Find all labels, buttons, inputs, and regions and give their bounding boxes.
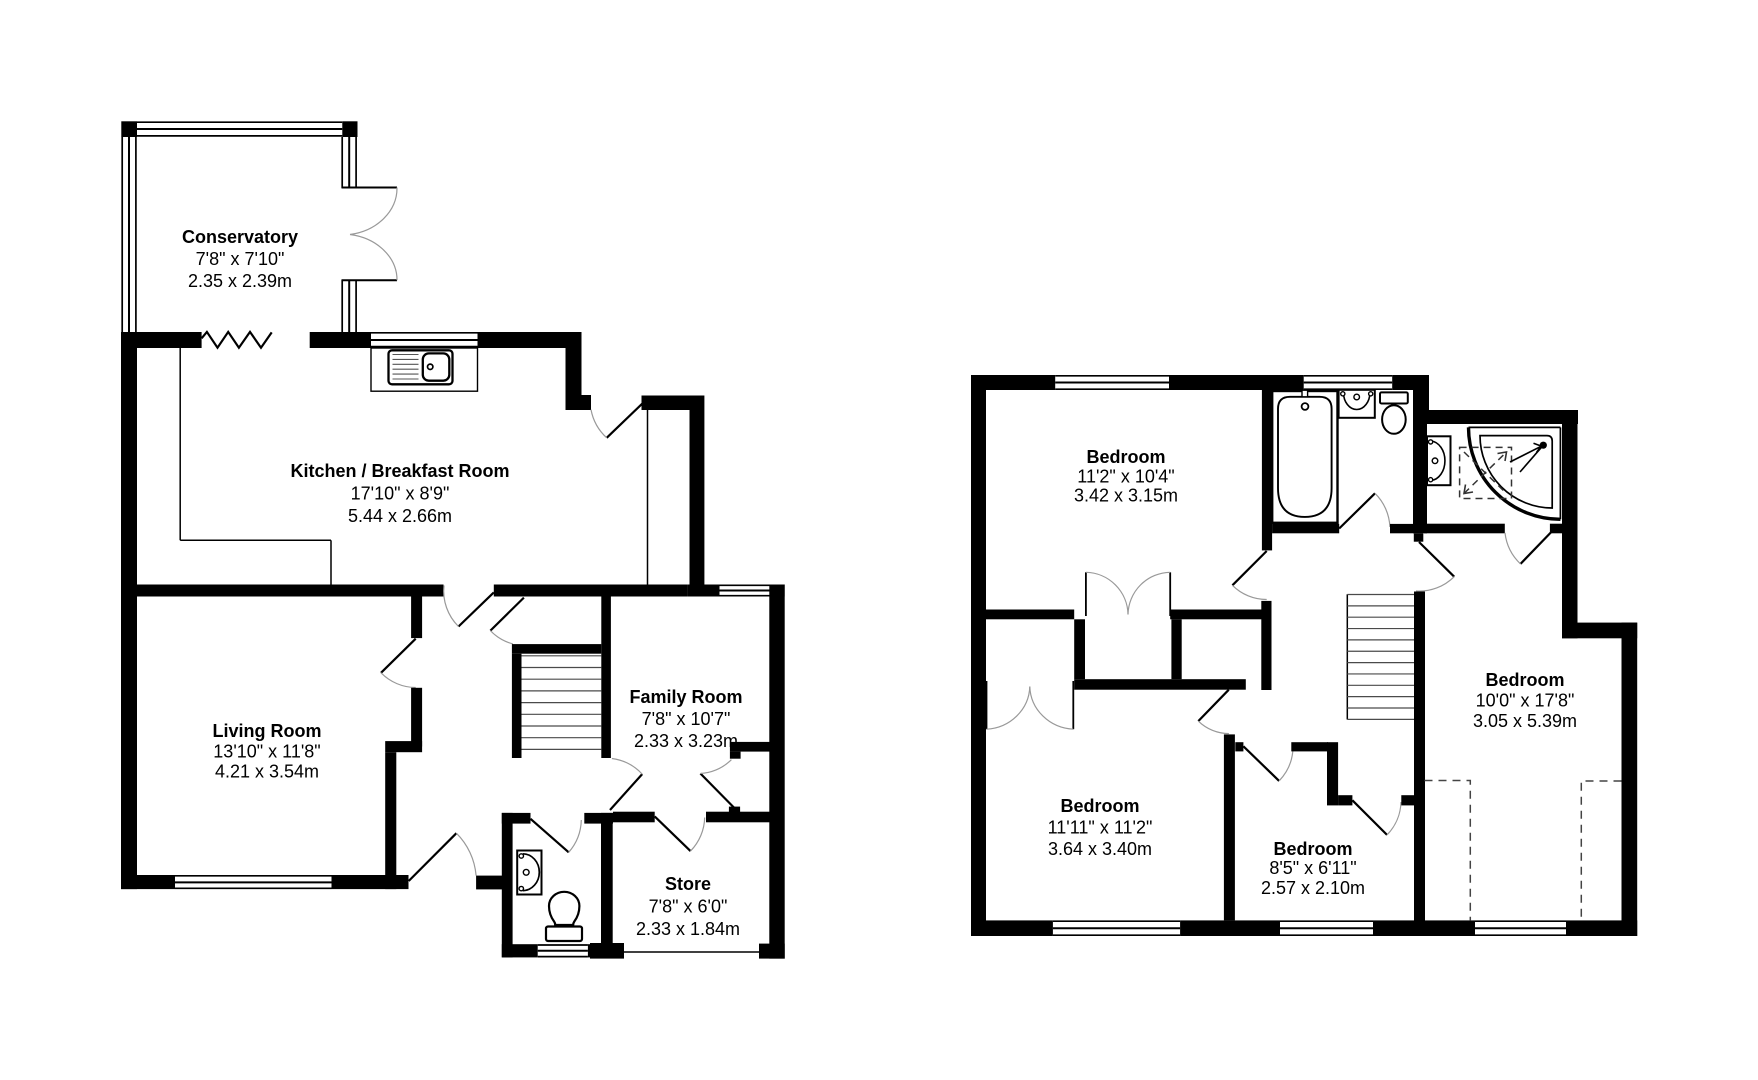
svg-text:2.33 x 3.23m: 2.33 x 3.23m — [634, 731, 738, 751]
svg-text:2.57 x 2.10m: 2.57 x 2.10m — [1261, 878, 1365, 898]
svg-text:Family Room: Family Room — [629, 687, 742, 707]
svg-text:13'10" x 11'8": 13'10" x 11'8" — [213, 742, 320, 762]
svg-text:7'8" x 6'0": 7'8" x 6'0" — [649, 897, 728, 917]
svg-text:Bedroom: Bedroom — [1485, 670, 1564, 690]
svg-text:3.64 x 3.40m: 3.64 x 3.40m — [1048, 839, 1152, 859]
svg-text:3.05 x 5.39m: 3.05 x 5.39m — [1473, 711, 1577, 731]
svg-text:Conservatory: Conservatory — [182, 227, 298, 247]
svg-text:11'2" x 10'4": 11'2" x 10'4" — [1077, 467, 1174, 487]
svg-text:Store: Store — [665, 874, 711, 894]
svg-text:Living Room: Living Room — [213, 721, 322, 741]
svg-text:2.33 x 1.84m: 2.33 x 1.84m — [636, 919, 740, 939]
svg-text:Bedroom: Bedroom — [1273, 839, 1352, 859]
svg-text:2.35 x 2.39m: 2.35 x 2.39m — [188, 271, 292, 291]
svg-text:Bedroom: Bedroom — [1060, 796, 1139, 816]
svg-text:5.44 x 2.66m: 5.44 x 2.66m — [348, 506, 452, 526]
svg-text:Kitchen / Breakfast Room: Kitchen / Breakfast Room — [290, 461, 509, 481]
svg-text:7'8" x 7'10": 7'8" x 7'10" — [196, 249, 285, 269]
svg-text:17'10" x 8'9": 17'10" x 8'9" — [351, 484, 450, 504]
svg-text:10'0" x 17'8": 10'0" x 17'8" — [1476, 691, 1575, 711]
svg-text:11'11" x 11'2": 11'11" x 11'2" — [1048, 818, 1153, 838]
svg-text:8'5" x 6'11": 8'5" x 6'11" — [1269, 858, 1356, 878]
svg-text:Bedroom: Bedroom — [1086, 447, 1165, 467]
svg-text:7'8" x 10'7": 7'8" x 10'7" — [642, 709, 731, 729]
svg-text:3.42 x 3.15m: 3.42 x 3.15m — [1074, 486, 1178, 506]
svg-text:4.21 x 3.54m: 4.21 x 3.54m — [215, 762, 319, 782]
